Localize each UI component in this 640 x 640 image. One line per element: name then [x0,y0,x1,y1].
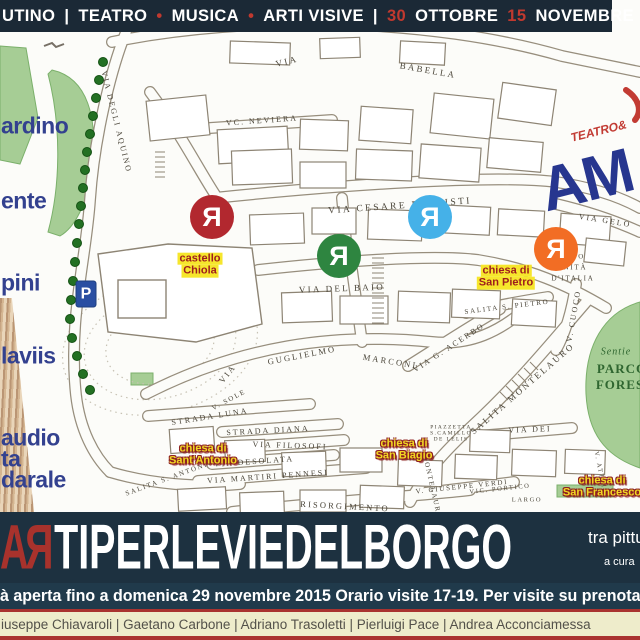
poi-label: chiesa diSan Pietro [477,265,535,290]
street-label: DE LELIS [434,436,469,442]
event-marker: Я [408,195,452,239]
street-label: LARGO [512,496,543,503]
legend-fragment: laviis [1,343,56,370]
banner-text: • [156,7,162,26]
banner-text: UTINO [2,7,55,26]
banner-text: TEATRO [78,7,147,26]
legend-fragment: darale [1,467,66,494]
info-bar: à aperta fino a domenica 29 novembre 201… [0,583,640,609]
banner-text: NOVEMBRE [535,7,634,26]
title-mirrored-r: Я [25,512,53,583]
park-label: Sentie [601,347,631,358]
banner-text: OTTOBRE [415,7,498,26]
park-area [0,46,38,164]
banner-text: MUSICA [172,7,239,26]
credits-bar: iuseppe Chiavaroli | Gaetano Carbone | A… [0,612,640,636]
banner-text: • [248,7,254,26]
parking-icon: P [76,281,97,308]
street-label: VIA DEI [508,425,551,435]
title-rest: TIPERLEVIEDELBORGO [54,512,512,583]
event-marker: Я [534,227,578,271]
title-subtext-bottom: a cura [604,556,635,568]
event-marker: Я [317,234,361,278]
info-text: à aperta fino a domenica 29 novembre 201… [0,587,640,606]
poi-label: chiesa diSan Biagio [376,438,433,463]
title-band: A Я TIPERLEVIEDELBORGO tra pittu a cura [0,512,640,583]
title-subtext-top: tra pittu [588,528,640,548]
street-label: D'ITALIA [551,275,594,283]
banner-text: ARTI VISIVE [263,7,364,26]
poi-label: castelloChiola [178,253,223,278]
logo-swoosh [626,90,639,120]
park-label: PARCO [597,361,640,377]
top-banner: UTINO|TEATRO•MUSICA•ARTI VISIVE|30OTTOBR… [0,0,612,32]
event-marker: Я [190,195,234,239]
banner-text: | [373,7,378,26]
park-label: FORES [596,377,640,393]
poi-label: chiesa diSant'Antonio [169,443,237,468]
red-divider-bottom [0,636,640,640]
banner-text: | [64,7,69,26]
green-patch [131,373,153,385]
banner-text: 15 [507,7,526,26]
poi-label: chiesa diSan Francesco [563,475,640,500]
map-decoration [44,43,64,47]
legend-fragment: ardino [1,113,68,140]
credits-text: iuseppe Chiavaroli | Gaetano Carbone | A… [1,617,591,632]
legend-fragment: ente [1,188,46,215]
event-title: A Я TIPERLEVIEDELBORGO [0,512,512,583]
banner-text: 30 [387,7,406,26]
legend-fragment: pini [1,270,40,297]
